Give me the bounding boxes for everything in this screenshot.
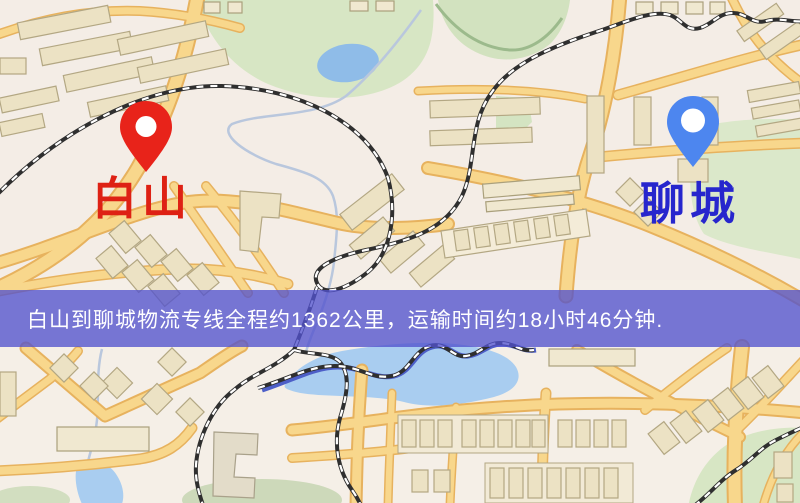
destination-label: 聊城 [640, 181, 740, 226]
map-canvas: 白山 聊城 白山到聊城物流专线全程约1362公里，运输时间约18小时46分钟. [0, 0, 800, 503]
map-background [0, 0, 800, 503]
destination-pin[interactable] [665, 95, 721, 169]
origin-pin[interactable] [118, 100, 174, 174]
route-info-banner: 白山到聊城物流专线全程约1362公里，运输时间约18小时46分钟. [0, 290, 800, 347]
origin-label: 白山 [92, 176, 192, 221]
route-info-text: 白山到聊城物流专线全程约1362公里，运输时间约18小时46分钟. [0, 304, 663, 334]
